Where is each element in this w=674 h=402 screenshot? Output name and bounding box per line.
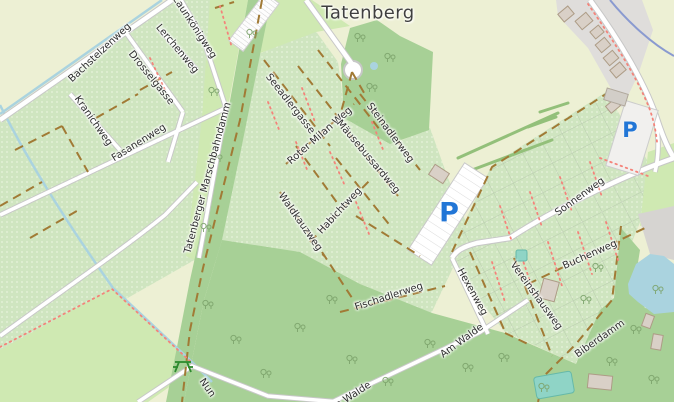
pool-small: [516, 250, 527, 261]
place-label-tatenberg: Tatenberg: [321, 3, 414, 24]
map-viewport[interactable]: BachstelzenwegZaunkönigwegLerchenwegDros…: [0, 0, 674, 402]
map-canvas: [0, 0, 674, 402]
pond-small: [370, 62, 378, 70]
